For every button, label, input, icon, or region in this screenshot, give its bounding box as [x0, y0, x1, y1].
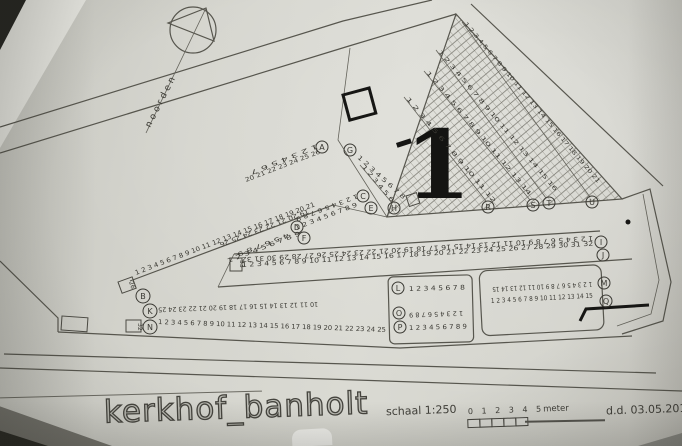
row-l-marker: L: [392, 282, 404, 294]
row-a-lower-numbers: 20 21 22 23 24 25 26: [244, 149, 321, 184]
road-upper-line: [0, 0, 432, 127]
svg-text:33: 33: [238, 260, 245, 268]
row-n-end-box: 32: [126, 320, 143, 332]
row-p-marker: P: [394, 321, 406, 333]
row-k-marker: K: [143, 304, 157, 318]
boundary-left-tip: [0, 261, 58, 332]
row-n-marker: N: [143, 320, 157, 334]
row-e-marker: E: [365, 202, 377, 214]
svg-text:C: C: [360, 192, 366, 201]
row-g-marker: G: [344, 144, 356, 156]
date-label: d.d. 03.05.2016: [606, 401, 682, 417]
svg-text:R: R: [485, 203, 491, 212]
row-n-numbers: 1 2 3 4 5 6 7 8 9 10 11 12 13 14 15 16 1…: [158, 318, 386, 334]
row-l-numbers: 1 2 3 4 5 6 7 8: [409, 284, 465, 293]
row-o-numbers: 1 2 3 4 5 6 7 8 9: [409, 309, 463, 319]
svg-text:E: E: [368, 204, 373, 213]
svg-text:32: 32: [136, 323, 143, 331]
row-q-marker: Q: [600, 295, 612, 307]
svg-text:G: G: [347, 146, 353, 155]
tip-structure: [61, 316, 88, 332]
row-k-numbers: 10 11 12 13 14 15 16 17 18 19 20 21 22 2…: [158, 300, 318, 314]
svg-text:D: D: [294, 223, 300, 232]
scale-bar-ticks: 0 1 2 3 4 5: [468, 405, 542, 417]
road-lower-line: [0, 14, 456, 153]
svg-text:U: U: [589, 198, 595, 207]
site-plan-drawing: noorden 1 1 2 3 4 5 6 7 20 21 22 23 24 2…: [0, 0, 682, 446]
svg-text:H: H: [391, 204, 397, 213]
row-b-end-box: 26: [118, 277, 136, 293]
boundary-bottom: [58, 332, 632, 348]
row-j-marker: J: [597, 249, 609, 261]
row-f-marker: F: [298, 232, 310, 244]
road-bottom-1: [4, 354, 656, 373]
scale-bar-unit: meter: [543, 404, 569, 415]
paper-tab: [292, 428, 333, 446]
scale-label: schaal 1:250: [386, 403, 457, 418]
svg-text:K: K: [147, 307, 153, 316]
ink-dot: [626, 220, 631, 225]
svg-text:M: M: [601, 279, 608, 288]
svg-text:L: L: [396, 284, 401, 293]
svg-text:Q: Q: [603, 297, 609, 306]
scale-bar: 0 1 2 3 4 5meter: [468, 395, 589, 428]
row-o-marker: O: [393, 307, 405, 319]
svg-text:P: P: [398, 323, 403, 332]
svg-text:F: F: [302, 234, 307, 243]
row-m-numbers: 1 2 3 4 5 6 7 8 9 10 11 12 13 14 15: [492, 280, 592, 293]
cemetery-plan-photo: noorden 1 1 2 3 4 5 6 7 20 21 22 23 24 2…: [0, 0, 682, 446]
svg-text:J: J: [601, 251, 604, 260]
row-b-marker: B: [136, 289, 150, 303]
svg-text:I: I: [600, 238, 602, 247]
svg-text:N: N: [147, 323, 153, 332]
svg-text:O: O: [396, 309, 402, 318]
row-p-numbers: 1 2 3 4 5 6 7 8 9: [409, 322, 467, 332]
svg-text:S: S: [530, 201, 535, 210]
svg-text:B: B: [140, 292, 146, 301]
svg-text:T: T: [546, 199, 552, 208]
row-i-marker: I: [595, 236, 607, 248]
row-q-numbers: 1 2 3 4 5 6 7 8 9 10 11 12 13 14 15: [491, 292, 593, 305]
building-square: [343, 88, 376, 120]
svg-text:A: A: [319, 143, 325, 152]
row-m-marker: M: [598, 277, 610, 289]
